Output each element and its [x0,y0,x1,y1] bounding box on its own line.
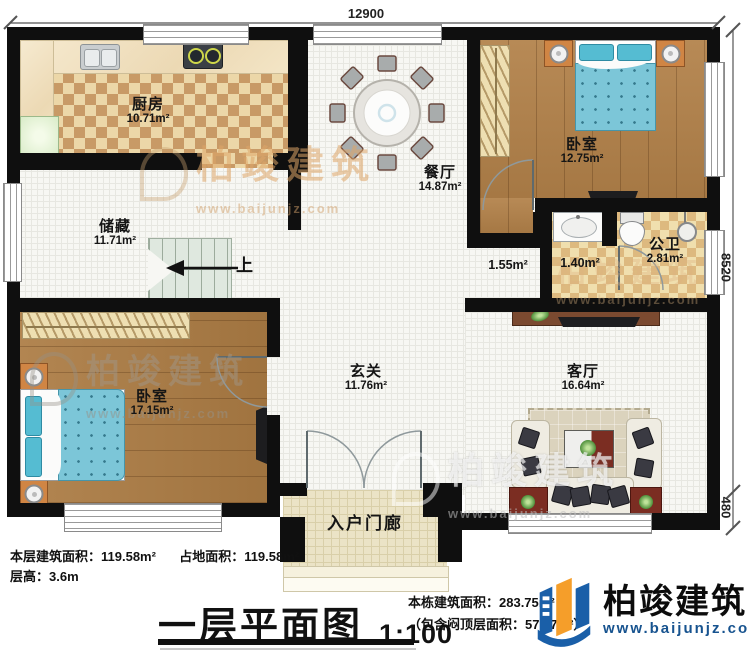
lamp-icon [549,44,568,63]
title-underline-thin [160,648,416,650]
wall [467,233,540,248]
brand-url: www.baijunjz.com [603,620,750,637]
dimension-right-lower: 480 [719,488,734,528]
wall [288,27,308,172]
window [64,503,222,532]
wall [288,172,301,230]
room-label-bedroom1: 卧室 12.75m² [561,136,604,166]
stair-notch [148,249,174,291]
washbasin-counter [553,212,604,242]
stove-burner [188,48,204,64]
sink-basin [101,49,117,67]
floor-plan-page: 上 [0,0,750,651]
kitchen-floor [52,72,288,155]
lamp-icon [25,485,44,504]
window [313,24,442,45]
wall [650,513,720,530]
fridge [20,116,59,157]
wall [273,153,288,170]
porch-step [283,577,449,592]
room-label-porch: 入户门廊 [327,514,403,534]
room-label-foyer: 玄关 11.76m² [345,363,387,393]
wall [423,483,462,517]
wall [280,483,307,496]
nightstand [20,363,48,391]
faucet-icon [576,215,580,219]
dimension-top: 12900 [340,6,392,21]
sofa-left [511,420,550,488]
porch-pillar [438,517,462,562]
kitchen-counter-top [20,40,290,74]
bed-pillow [617,44,652,61]
bed-blanket [58,389,125,481]
room-label-dining: 餐厅 14.87m² [419,164,462,194]
window [143,24,249,45]
wall [7,280,20,517]
room-label-storage: 储藏 11.71m² [94,218,136,248]
room-label-kitchen: 厨房 10.71m² [127,96,170,126]
stove-burner [205,48,221,64]
bedroom2-tv [256,406,267,464]
land-area-text: 占地面积：119.58m² [179,549,299,564]
plant-icon [580,440,596,456]
bedroom1-wardrobe [480,45,510,157]
washbasin [561,217,597,238]
room-label-bathroom: 公卫 2.81m² [647,236,683,266]
title-underline [158,639,414,645]
sofa-pillow [569,485,591,507]
sofa-pillow [518,427,541,450]
wall [7,27,146,40]
wall [535,198,713,212]
floor-height-text: 层高：3.6m [10,566,79,585]
bed-blanket [575,63,656,131]
kitchen-door-threshold [202,153,273,168]
wall [465,298,713,312]
floor-area-text: 本层建筑面积：119.58m² [10,549,156,564]
lamp-icon [661,44,680,63]
wall [7,503,68,517]
window [704,62,725,177]
bed-pillow [579,44,614,61]
bed-sheet [41,390,61,478]
room-label-washroom: 1.40m² [560,256,600,270]
sofa-pillow [631,426,654,449]
plant-icon [521,495,535,509]
wall [7,153,202,170]
stairs-up-label: 上 [236,251,253,276]
wall [462,513,508,530]
wall [533,212,540,234]
staircase [148,238,232,301]
wall [267,312,280,357]
footer-areas: 本层建筑面积：119.58m² 占地面积：119.58m² [10,546,299,565]
lamp-icon [25,368,44,387]
window [3,183,22,282]
wall [7,298,280,312]
dimension-right-upper: 8520 [719,246,734,290]
stove [183,42,223,69]
room-label-corridor: 1.55m² [488,258,528,272]
company-logo-icon [533,575,595,647]
sink-basin [84,49,100,67]
bed-pillow [25,437,42,477]
bedroom2-wardrobe [22,312,190,339]
bedroom2-bed [20,389,125,481]
room-label-living: 客厅 16.64m² [562,363,605,393]
plant-icon [639,495,653,509]
company-logo: 柏竣建筑 www.baijunjz.com [533,575,750,647]
bed-pillow [25,396,42,436]
wall [602,212,617,246]
nightstand [544,40,573,67]
wall [540,212,552,298]
bedroom1-door-vestibule [480,198,533,233]
sofa-pillow [607,485,631,509]
sofa-pillow [634,458,655,479]
wall [707,27,720,62]
living-room-tv [558,317,640,327]
bedroom1-bed [575,40,656,130]
wall [440,27,720,40]
kitchen-sink [80,44,120,70]
room-label-bedroom2: 卧室 17.15m² [131,388,174,418]
sofa-pillow [520,455,541,476]
wall [467,27,480,248]
wall [267,415,280,517]
nightstand [656,40,685,67]
sofa-main [546,477,634,518]
window [508,513,652,534]
brand-name: 柏竣建筑 [603,585,750,621]
